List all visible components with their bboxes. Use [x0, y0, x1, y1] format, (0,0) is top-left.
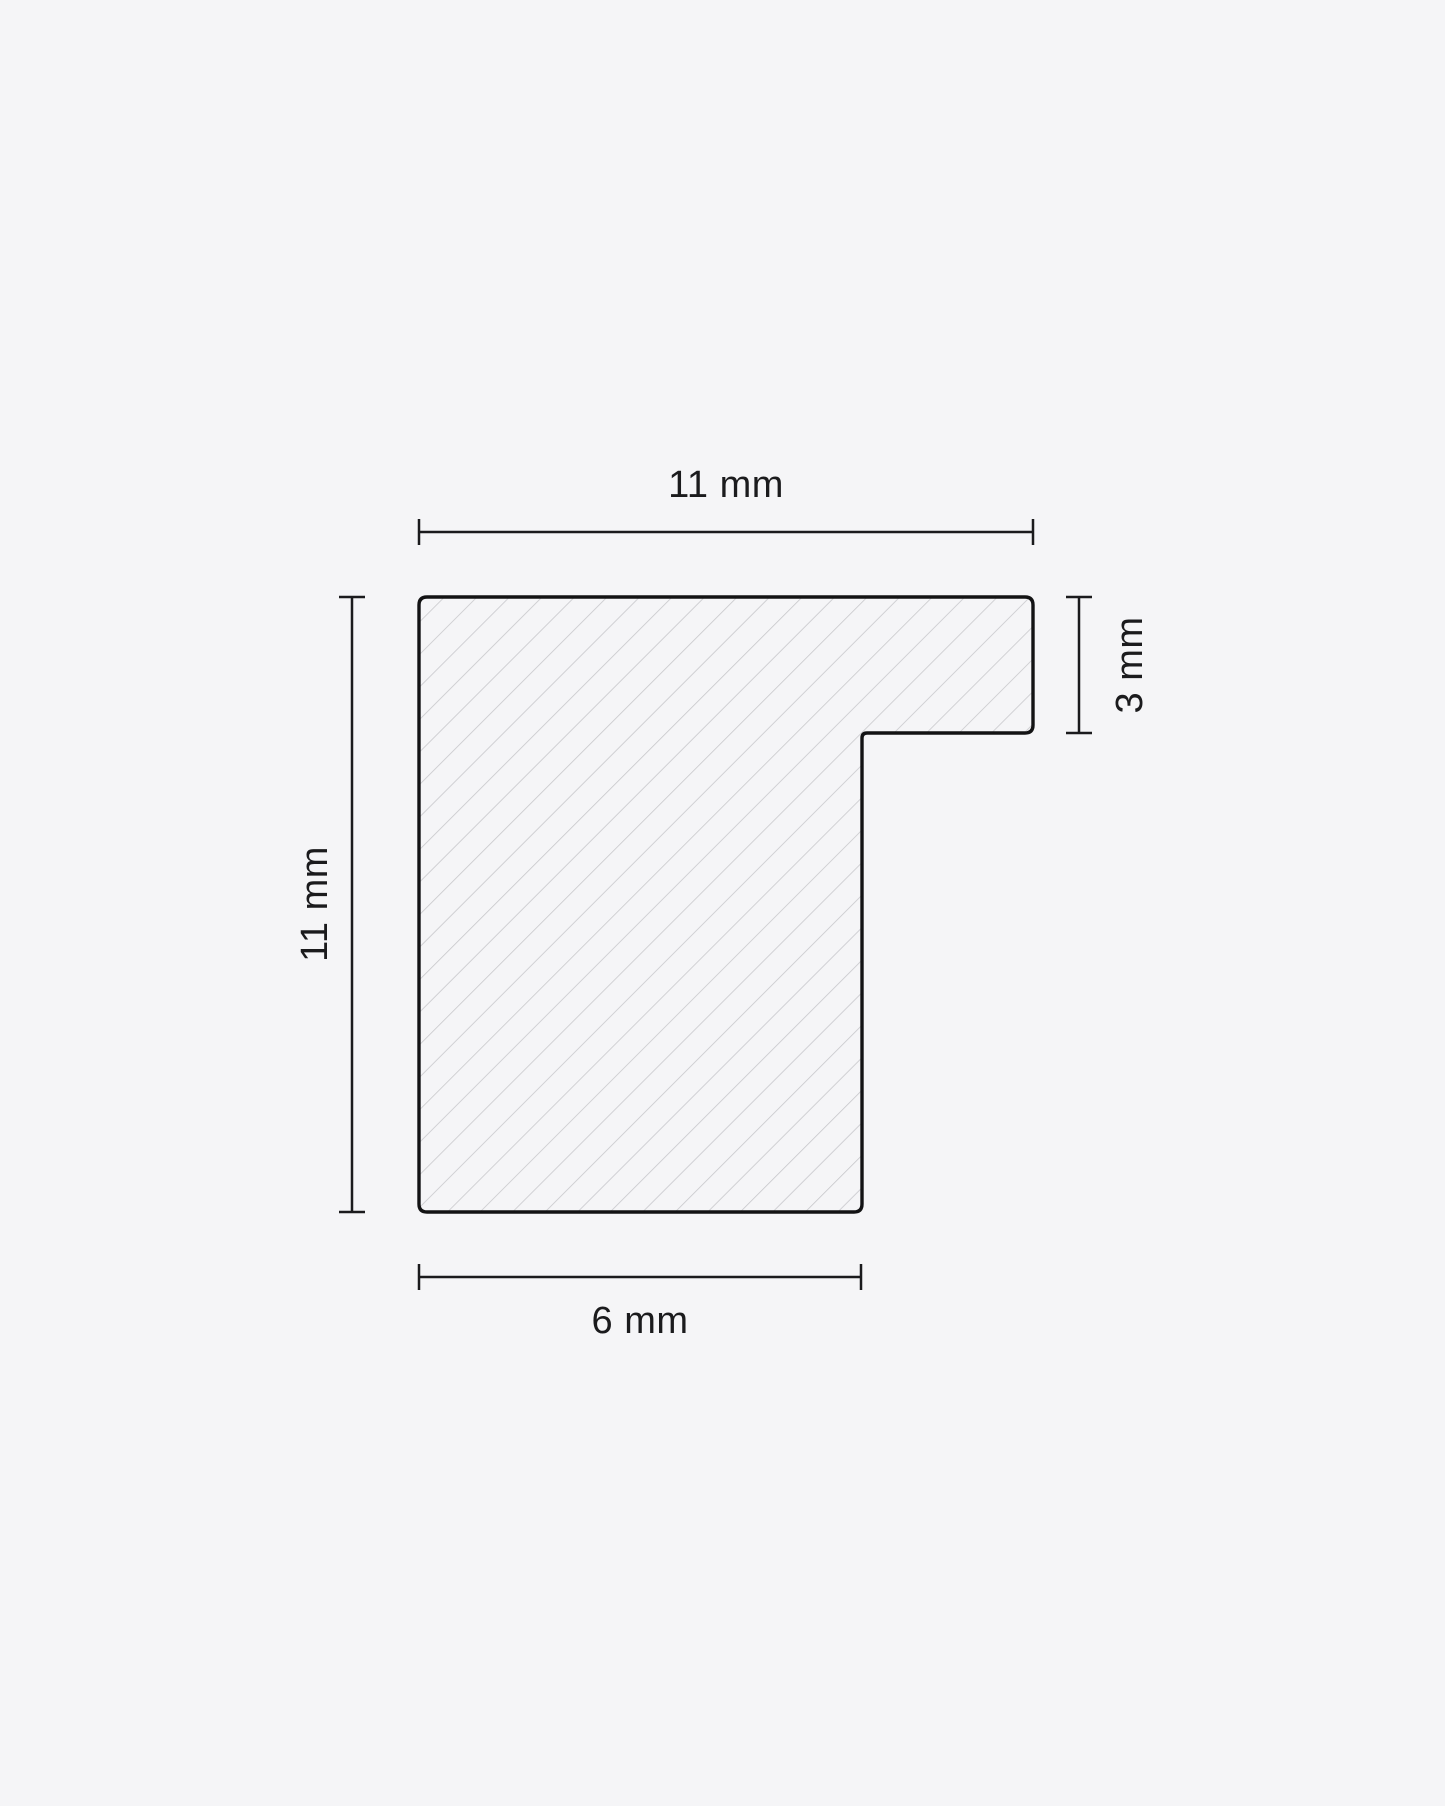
- dimension-label-top-width: 11 mm: [668, 466, 784, 504]
- profile-drawing: [0, 0, 1445, 1806]
- dimension-label-right-lip-height: 3 mm: [1111, 617, 1149, 714]
- dimension-line-left: [339, 597, 365, 1212]
- dimension-label-left-height: 11 mm: [296, 846, 334, 962]
- dimension-line-bottom: [419, 1264, 861, 1290]
- profile-diagram-canvas: 11 mm 11 mm 3 mm 6 mm: [0, 0, 1445, 1806]
- dimension-line-top: [419, 519, 1033, 545]
- dimension-label-bottom-leg-width: 6 mm: [592, 1302, 689, 1340]
- dimension-line-right: [1066, 597, 1092, 733]
- profile-shape: [419, 597, 1033, 1212]
